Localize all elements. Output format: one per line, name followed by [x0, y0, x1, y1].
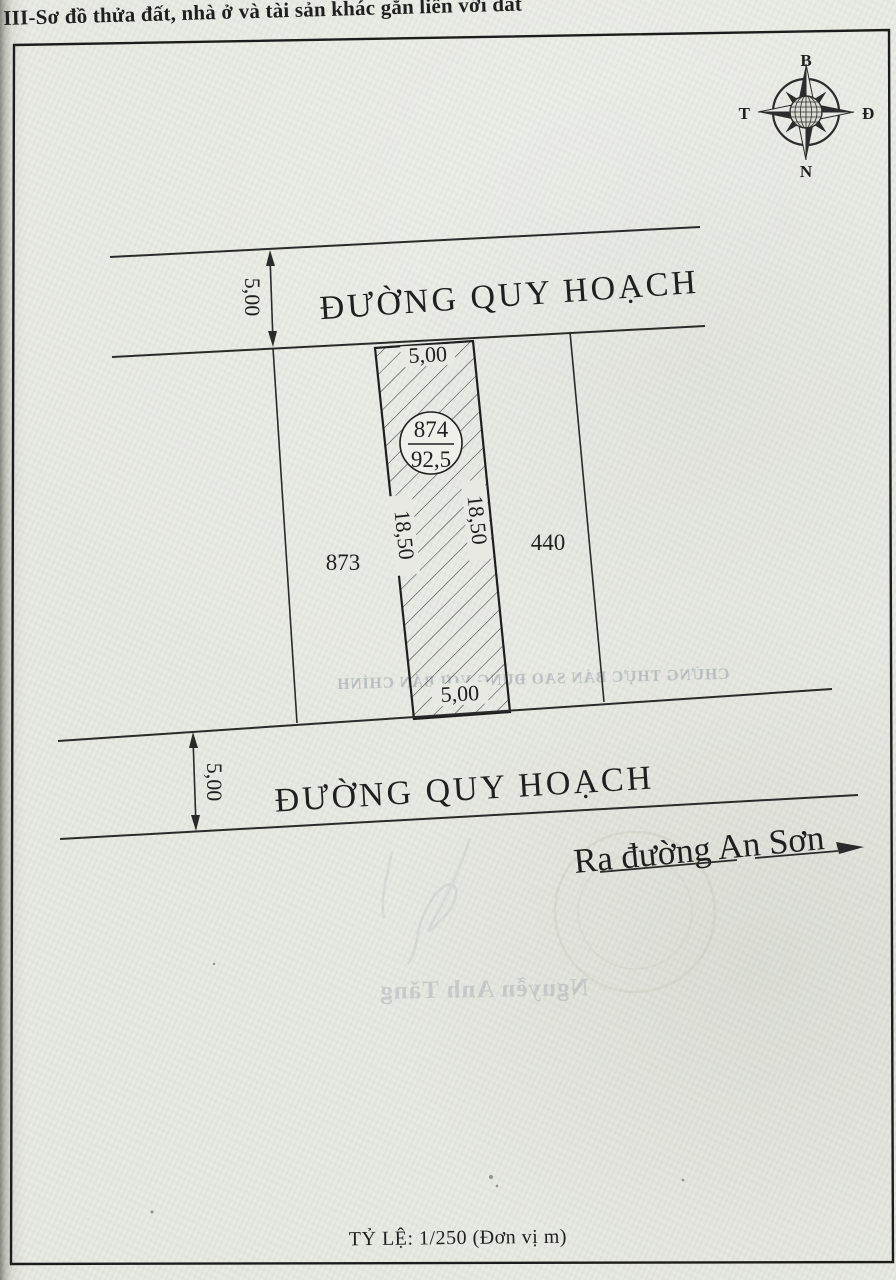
parcel-area: 92,5	[411, 447, 451, 472]
parcel-front-width-label: 5,00	[400, 341, 455, 369]
svg-text:5,00: 5,00	[440, 680, 480, 707]
svg-text:18,50: 18,50	[462, 494, 492, 546]
bottom-road-name: ĐƯỜNG QUY HOẠCH	[274, 758, 656, 819]
compass-globe	[790, 96, 822, 128]
scanned-document: III-Sơ đồ thửa đất, nhà ở và tài sản khá…	[0, 0, 896, 1280]
top-road-width-value: 5,00	[240, 278, 265, 317]
ghost-signature-name: Nguyễn Anh Tăng	[379, 974, 589, 1005]
compass-west-label: T	[739, 104, 751, 123]
neighbor-parcel-right: 440	[531, 530, 566, 555]
right-neighbor-east-boundary	[570, 332, 604, 702]
compass-rose: B Đ N T	[739, 51, 875, 181]
top-road-width-dimension: 5,00	[240, 250, 277, 347]
plot-diagram: CHỨNG THỰC BẢN SAO ĐÚNG VỚI BẢN CHÍNH Ng…	[0, 0, 896, 1280]
compass-north-label: B	[800, 51, 811, 70]
neighbor-parcel-left: 873	[326, 550, 361, 575]
parcel-number: 874	[414, 417, 449, 442]
ghost-signature-stroke	[383, 838, 470, 964]
exit-direction: Ra đường An Sơn	[572, 818, 864, 881]
parcel-back-width-label: 5,00	[431, 680, 488, 708]
bottom-road-width-dimension: 5,00	[189, 732, 227, 831]
left-neighbor-west-boundary	[273, 348, 297, 723]
ghost-text: CHỨNG THỰC BẢN SAO ĐÚNG VỚI BẢN CHÍNH	[336, 666, 729, 693]
parcel-number-badge: 874 92,5	[400, 412, 462, 474]
top-road-name: ĐƯỜNG QUY HOẠCH	[318, 263, 700, 327]
exit-arrowhead-icon	[836, 842, 864, 854]
compass-east-label: Đ	[862, 104, 874, 123]
compass-south-label: N	[800, 162, 813, 181]
top-road: ĐƯỜNG QUY HOẠCH 5,00	[110, 227, 705, 357]
parcel-874: 5,00 5,00 18,50 18,50 874 92,5	[375, 341, 510, 719]
svg-text:18,50: 18,50	[389, 509, 419, 561]
scale-note: TỶ LỆ: 1/250 (Đơn vị m)	[349, 1225, 567, 1251]
bottom-road-width-value: 5,00	[202, 763, 227, 802]
svg-text:5,00: 5,00	[408, 341, 448, 368]
